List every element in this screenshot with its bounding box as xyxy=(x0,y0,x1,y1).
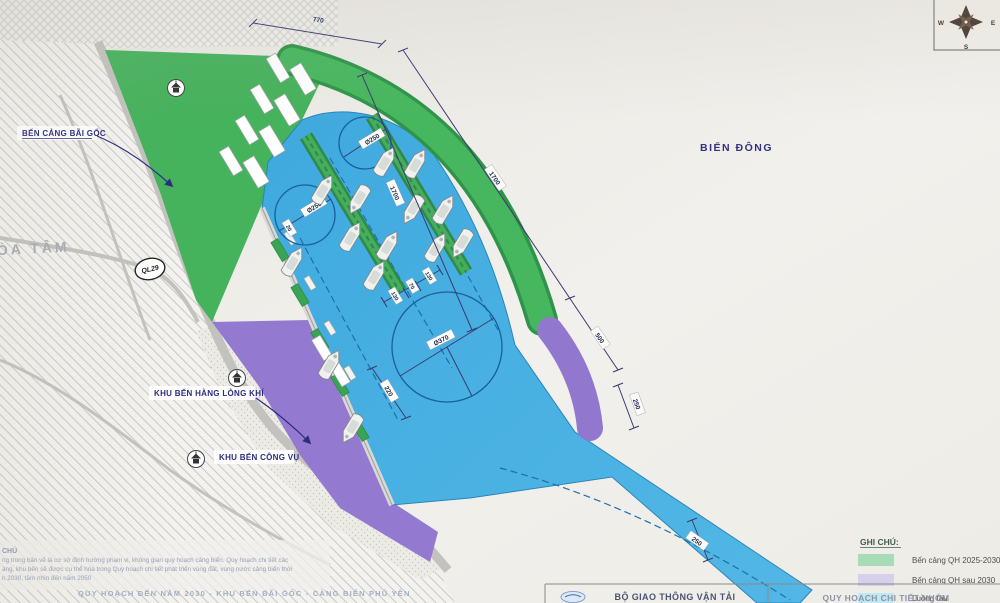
temple-icon xyxy=(168,80,185,97)
compass-south-label: S xyxy=(964,44,969,51)
temple-icon xyxy=(229,370,246,387)
callout-hang-long-khi: KHU BẾN HÀNG LỎNG KHÍ xyxy=(154,388,264,398)
legend-title: GHI CHÚ: xyxy=(860,536,899,547)
compass: W S E xyxy=(934,0,1000,51)
note-line-1: ng trong bản vẽ là cơ sở định hướng phạm… xyxy=(2,555,288,564)
legend-swatch-berth-2030 xyxy=(858,554,894,566)
note-line-3: n 2030, tầm nhìn đến năm 2050 xyxy=(2,573,92,582)
compass-west-label: W xyxy=(938,20,945,27)
callout-bai-goc: BẾN CẢNG BÃI GỐC xyxy=(22,128,106,138)
agency-name: BỘ GIAO THÔNG VẬN TẢI xyxy=(615,591,736,602)
legend-label-berth-2030: Bến cảng QH 2025-2030 xyxy=(912,556,1000,565)
note-heading: CHÚ xyxy=(2,546,17,555)
compass-east-label: E xyxy=(991,20,996,27)
project-title: QUY HOẠCH CHI TIẾT NHÓM xyxy=(822,592,949,603)
callout-cong-vu: KHU BẾN CÔNG VỤ xyxy=(219,452,300,462)
map-canvas: Ø250 Ø250 20 Ø370 xyxy=(0,0,1000,603)
drawing-title: QUY HOẠCH ĐẾN NĂM 2030 - KHU BẾN BÃI GỐC… xyxy=(78,588,411,598)
note-line-2: àng, khu bến sẽ được cụ thể hóa trong Qu… xyxy=(2,564,292,573)
temple-icon xyxy=(188,451,205,468)
port-master-plan-map: Ø250 Ø250 20 Ø370 xyxy=(0,0,1000,603)
land-hatch-top xyxy=(0,0,338,48)
sea-label: BIỂN ĐÔNG xyxy=(700,141,773,154)
agency-logo-icon xyxy=(561,592,585,603)
